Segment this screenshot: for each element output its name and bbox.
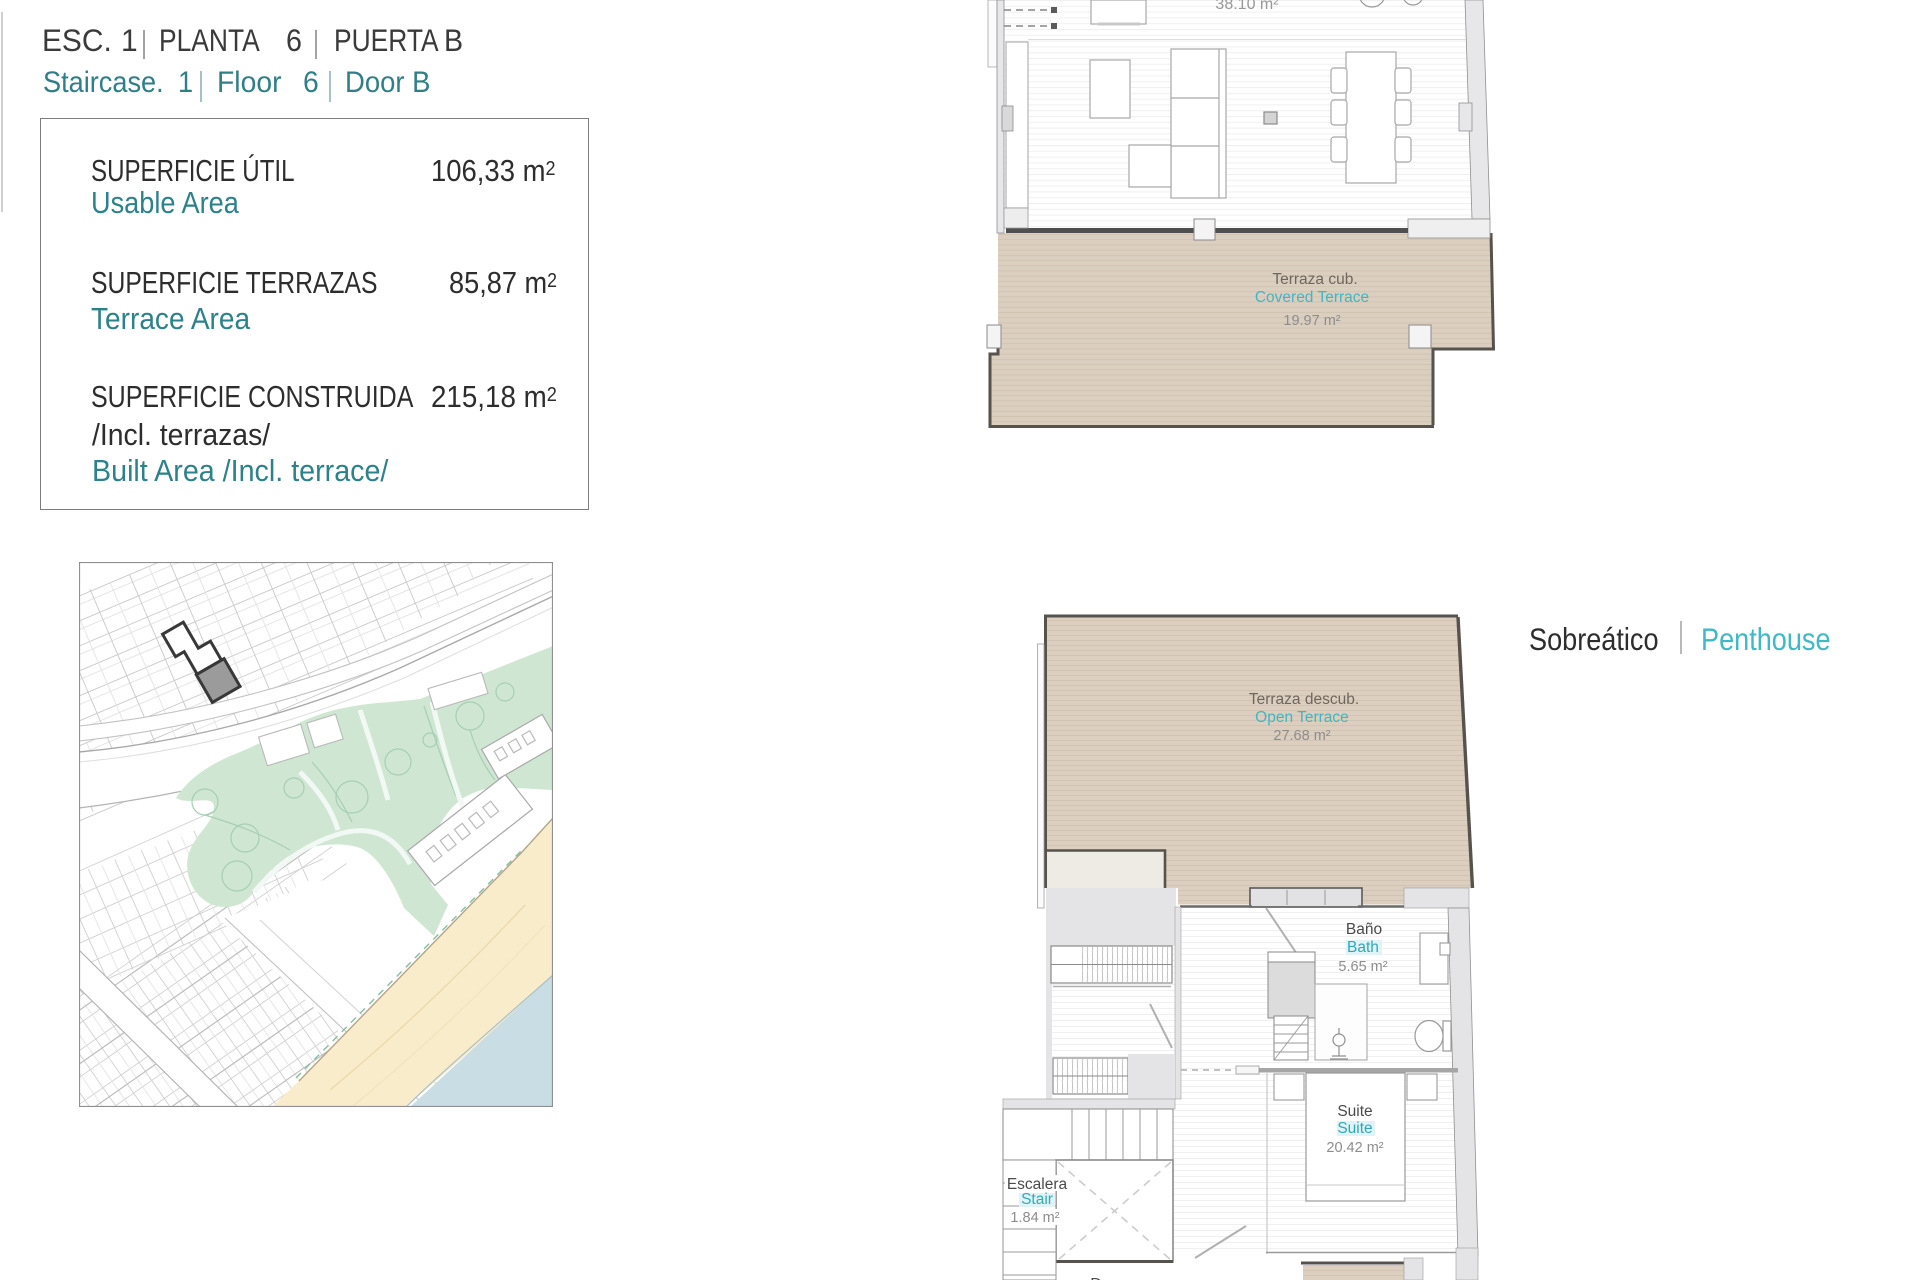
svg-text:20.42 m²: 20.42 m²: [1326, 1140, 1383, 1156]
svg-text:38.10 m²: 38.10 m²: [1215, 0, 1279, 13]
svg-text:Dorm.: Dorm.: [1090, 1276, 1134, 1280]
svg-text:Terraza descub.: Terraza descub.: [1249, 691, 1359, 708]
svg-text:Open Terrace: Open Terrace: [1255, 709, 1349, 726]
svg-text:1.84 m²: 1.84 m²: [1010, 1210, 1059, 1226]
svg-text:Suite: Suite: [1337, 1103, 1372, 1120]
svg-text:5.65 m²: 5.65 m²: [1338, 959, 1387, 975]
svg-text:Covered Terrace: Covered Terrace: [1255, 289, 1369, 306]
svg-text:Suite: Suite: [1337, 1120, 1372, 1137]
svg-text:Bath: Bath: [1347, 939, 1379, 956]
svg-text:Baño: Baño: [1346, 921, 1382, 938]
svg-text:Stair: Stair: [1021, 1191, 1053, 1208]
svg-text:Terraza cub.: Terraza cub.: [1272, 271, 1357, 288]
svg-text:27.68 m²: 27.68 m²: [1273, 728, 1330, 744]
svg-text:19.97 m²: 19.97 m²: [1283, 313, 1340, 329]
